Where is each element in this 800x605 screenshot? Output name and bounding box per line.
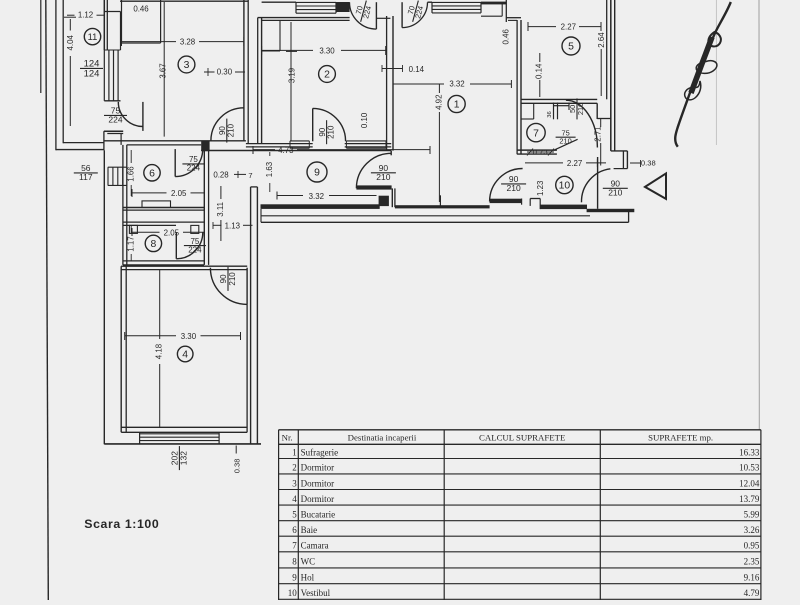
svg-text:3.32: 3.32: [449, 80, 464, 89]
svg-text:Dormitor: Dormitor: [301, 463, 335, 473]
svg-text:CALCUL SUPRAFETE: CALCUL SUPRAFETE: [479, 432, 565, 442]
svg-text:16.33: 16.33: [739, 447, 760, 457]
svg-text:10.53: 10.53: [739, 463, 760, 473]
svg-text:Camara: Camara: [301, 541, 329, 551]
svg-text:7: 7: [248, 171, 252, 180]
svg-text:210: 210: [228, 272, 237, 286]
svg-text:210: 210: [507, 183, 521, 193]
svg-text:0.95: 0.95: [744, 541, 760, 551]
svg-text:210: 210: [326, 125, 335, 139]
svg-text:4.92: 4.92: [435, 95, 444, 110]
svg-text:4.79: 4.79: [744, 588, 760, 598]
svg-text:3.30: 3.30: [319, 46, 335, 55]
svg-text:3.32: 3.32: [309, 192, 324, 201]
svg-text:0.30: 0.30: [217, 68, 233, 77]
svg-text:8: 8: [151, 239, 157, 250]
svg-text:1: 1: [454, 100, 460, 111]
svg-text:124: 124: [84, 69, 100, 80]
svg-text:0.28: 0.28: [213, 171, 229, 180]
svg-text:210: 210: [559, 136, 571, 145]
svg-text:224: 224: [187, 164, 201, 173]
svg-text:3.19: 3.19: [287, 67, 296, 83]
svg-text:Baie: Baie: [301, 525, 318, 535]
svg-text:1: 1: [292, 447, 297, 457]
svg-text:7: 7: [533, 128, 539, 139]
svg-text:224: 224: [188, 245, 202, 254]
svg-text:1.23: 1.23: [536, 180, 545, 196]
svg-text:4: 4: [292, 494, 297, 504]
svg-text:224: 224: [108, 115, 122, 125]
svg-text:4.73: 4.73: [278, 146, 294, 155]
svg-text:3.67: 3.67: [158, 63, 167, 78]
svg-text:7: 7: [292, 541, 297, 551]
svg-text:210: 210: [576, 103, 585, 115]
svg-text:9: 9: [292, 573, 297, 583]
svg-text:Dormitor: Dormitor: [301, 478, 335, 488]
svg-text:WC: WC: [301, 557, 316, 567]
svg-text:0.14: 0.14: [409, 65, 425, 74]
svg-text:12.04: 12.04: [739, 478, 760, 488]
svg-text:0.14: 0.14: [535, 63, 544, 79]
svg-text:5: 5: [568, 42, 574, 53]
svg-text:3.11: 3.11: [216, 202, 225, 217]
svg-text:3: 3: [292, 478, 297, 488]
svg-text:1.66: 1.66: [127, 166, 136, 182]
svg-text:4.04: 4.04: [66, 35, 75, 51]
svg-text:1.63: 1.63: [265, 161, 274, 177]
svg-text:2: 2: [292, 463, 297, 473]
svg-text:SUPRAFETE mp.: SUPRAFETE mp.: [648, 432, 713, 442]
svg-text:0.38: 0.38: [641, 159, 656, 168]
svg-text:11: 11: [88, 32, 98, 42]
svg-text:Sufragerie: Sufragerie: [301, 447, 338, 457]
svg-text:117: 117: [79, 172, 93, 182]
svg-text:2: 2: [324, 70, 330, 81]
svg-text:Vestibul: Vestibul: [301, 588, 331, 598]
svg-text:Destinatia incaperii: Destinatia incaperii: [348, 432, 417, 442]
svg-text:6: 6: [149, 169, 155, 180]
svg-text:2.27: 2.27: [567, 159, 582, 168]
svg-text:10: 10: [288, 588, 298, 598]
svg-text:1.13: 1.13: [225, 222, 241, 231]
svg-text:1.12: 1.12: [78, 11, 93, 20]
svg-text:2.27: 2.27: [561, 23, 576, 32]
svg-text:Bucatarie: Bucatarie: [301, 510, 335, 520]
svg-text:8: 8: [292, 557, 297, 567]
svg-text:0.46: 0.46: [133, 5, 149, 14]
svg-text:3.28: 3.28: [180, 37, 196, 46]
svg-text:2.35: 2.35: [744, 557, 760, 567]
svg-text:Scara 1:100: Scara 1:100: [84, 517, 159, 531]
svg-text:9: 9: [314, 168, 320, 179]
svg-text:210: 210: [608, 188, 622, 198]
svg-text:132: 132: [179, 451, 189, 465]
svg-text:0.10: 0.10: [360, 112, 369, 128]
svg-text:5: 5: [292, 510, 297, 520]
svg-text:2.05: 2.05: [164, 229, 180, 238]
svg-text:9.16: 9.16: [744, 573, 760, 583]
svg-text:0.73: 0.73: [533, 147, 548, 156]
svg-text:Hol: Hol: [301, 573, 315, 583]
svg-text:13.79: 13.79: [739, 494, 760, 504]
svg-text:0.38: 0.38: [233, 459, 242, 474]
svg-text:6: 6: [292, 525, 297, 535]
svg-text:2.64: 2.64: [597, 32, 606, 48]
svg-text:2.71: 2.71: [594, 126, 603, 141]
svg-text:5.99: 5.99: [744, 510, 760, 520]
svg-text:1.17: 1.17: [127, 236, 136, 251]
svg-text:4.18: 4.18: [155, 343, 164, 359]
svg-text:4: 4: [182, 350, 188, 361]
svg-text:3.26: 3.26: [744, 525, 760, 535]
svg-text:Dormitor: Dormitor: [301, 494, 335, 504]
svg-text:0.46: 0.46: [502, 29, 511, 45]
svg-text:3: 3: [184, 60, 190, 71]
svg-text:36: 36: [547, 111, 553, 117]
svg-text:2.05: 2.05: [171, 189, 187, 198]
svg-text:10: 10: [559, 181, 571, 192]
svg-text:Nr.: Nr.: [282, 432, 293, 442]
svg-text:210: 210: [227, 123, 236, 137]
svg-text:3.30: 3.30: [181, 332, 197, 341]
svg-text:210: 210: [376, 172, 390, 182]
